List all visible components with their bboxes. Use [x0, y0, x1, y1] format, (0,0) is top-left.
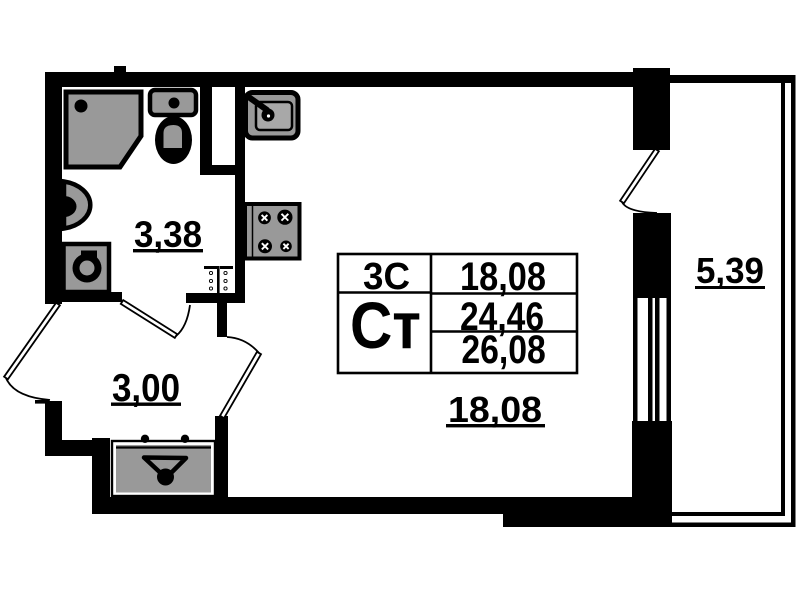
svg-text:Ст: Ст	[350, 288, 421, 362]
svg-text:3,38: 3,38	[134, 214, 202, 255]
svg-text:18,08: 18,08	[460, 255, 546, 299]
svg-text:18,08: 18,08	[448, 389, 542, 430]
svg-text:5,39: 5,39	[696, 250, 764, 291]
svg-text:26,08: 26,08	[461, 328, 546, 372]
